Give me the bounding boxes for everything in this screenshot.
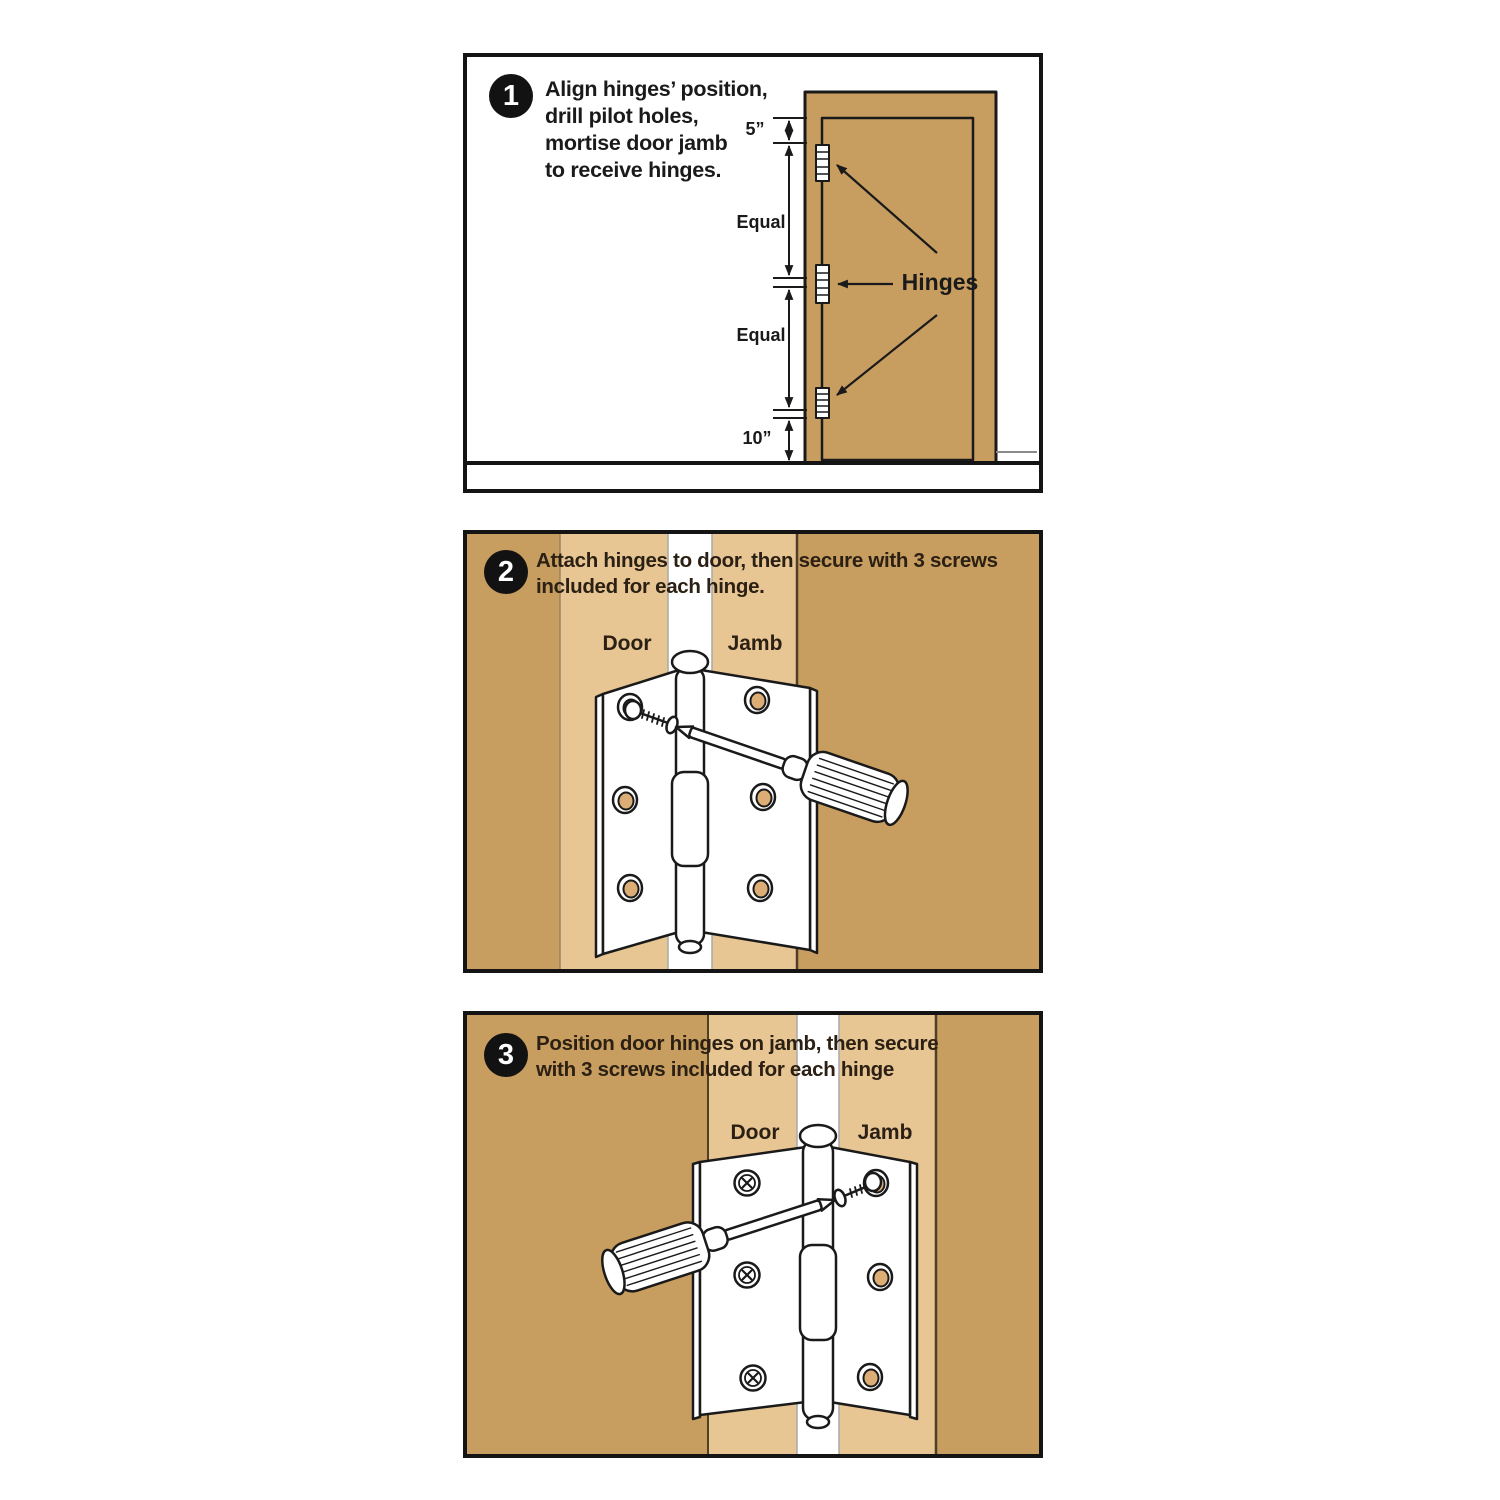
screw-hole xyxy=(745,687,769,713)
hinge-pin-cap xyxy=(672,651,708,673)
hinge-pin-cap xyxy=(800,1125,836,1147)
hinge-installation-instructions: 1 Align hinges’ position, drill pilot ho… xyxy=(0,0,1500,1500)
installed-screw xyxy=(735,1171,760,1196)
step-1-badge: 1 xyxy=(489,74,533,118)
door-label: Door xyxy=(603,632,652,656)
screw-hole xyxy=(868,1264,892,1290)
top-hinge-marker xyxy=(816,145,829,181)
dim-label-equal-1: Equal xyxy=(736,212,785,233)
dim-label-5in: 5” xyxy=(745,119,764,140)
screw-hole xyxy=(618,875,642,901)
instruction-line: to receive hinges. xyxy=(545,157,767,184)
step-3-panel: 3 Position door hinges on jamb, then sec… xyxy=(463,1011,1043,1458)
dimension-lines xyxy=(773,118,807,460)
hinge-illustration xyxy=(596,651,817,957)
installed-screw xyxy=(735,1263,760,1288)
hinges-label: Hinges xyxy=(902,269,979,296)
step-3-badge: 3 xyxy=(484,1033,528,1077)
step-2-number: 2 xyxy=(498,556,514,589)
step-2-instruction: Attach hinges to door, then secure with … xyxy=(536,548,998,600)
dim-label-equal-2: Equal xyxy=(736,325,785,346)
step-3-number: 3 xyxy=(498,1039,514,1072)
step-3-instruction: Position door hinges on jamb, then secur… xyxy=(536,1031,938,1083)
screw-head xyxy=(625,701,641,719)
step-1-instruction: Align hinges’ position, drill pilot hole… xyxy=(545,76,767,184)
instruction-line: Align hinges’ position, xyxy=(545,76,767,103)
instruction-line: included for each hinge. xyxy=(536,574,998,600)
screw-hole xyxy=(858,1364,882,1390)
jamb-label: Jamb xyxy=(728,632,783,656)
step-2-panel: 2 Attach hinges to door, then secure wit… xyxy=(463,530,1043,973)
instruction-line: Position door hinges on jamb, then secur… xyxy=(536,1031,938,1057)
screw-hole xyxy=(613,787,637,813)
step-2-badge: 2 xyxy=(484,550,528,594)
jamb-label: Jamb xyxy=(858,1121,913,1145)
screw-head xyxy=(865,1173,881,1191)
screw-hole xyxy=(748,875,772,901)
step-1-panel: 1 Align hinges’ position, drill pilot ho… xyxy=(463,53,1043,493)
instruction-line: Attach hinges to door, then secure with … xyxy=(536,548,998,574)
screw-hole xyxy=(751,784,775,810)
instruction-line: with 3 screws included for each hinge xyxy=(536,1057,938,1083)
bottom-hinge-marker xyxy=(816,388,829,418)
instruction-line: drill pilot holes, xyxy=(545,103,767,130)
instruction-line: mortise door jamb xyxy=(545,130,767,157)
door-label: Door xyxy=(731,1121,780,1145)
hinge-illustration xyxy=(693,1125,917,1428)
installed-screw xyxy=(741,1366,766,1391)
step-1-number: 1 xyxy=(503,80,519,113)
dim-label-10in: 10” xyxy=(742,428,771,449)
middle-hinge-marker xyxy=(816,265,829,303)
